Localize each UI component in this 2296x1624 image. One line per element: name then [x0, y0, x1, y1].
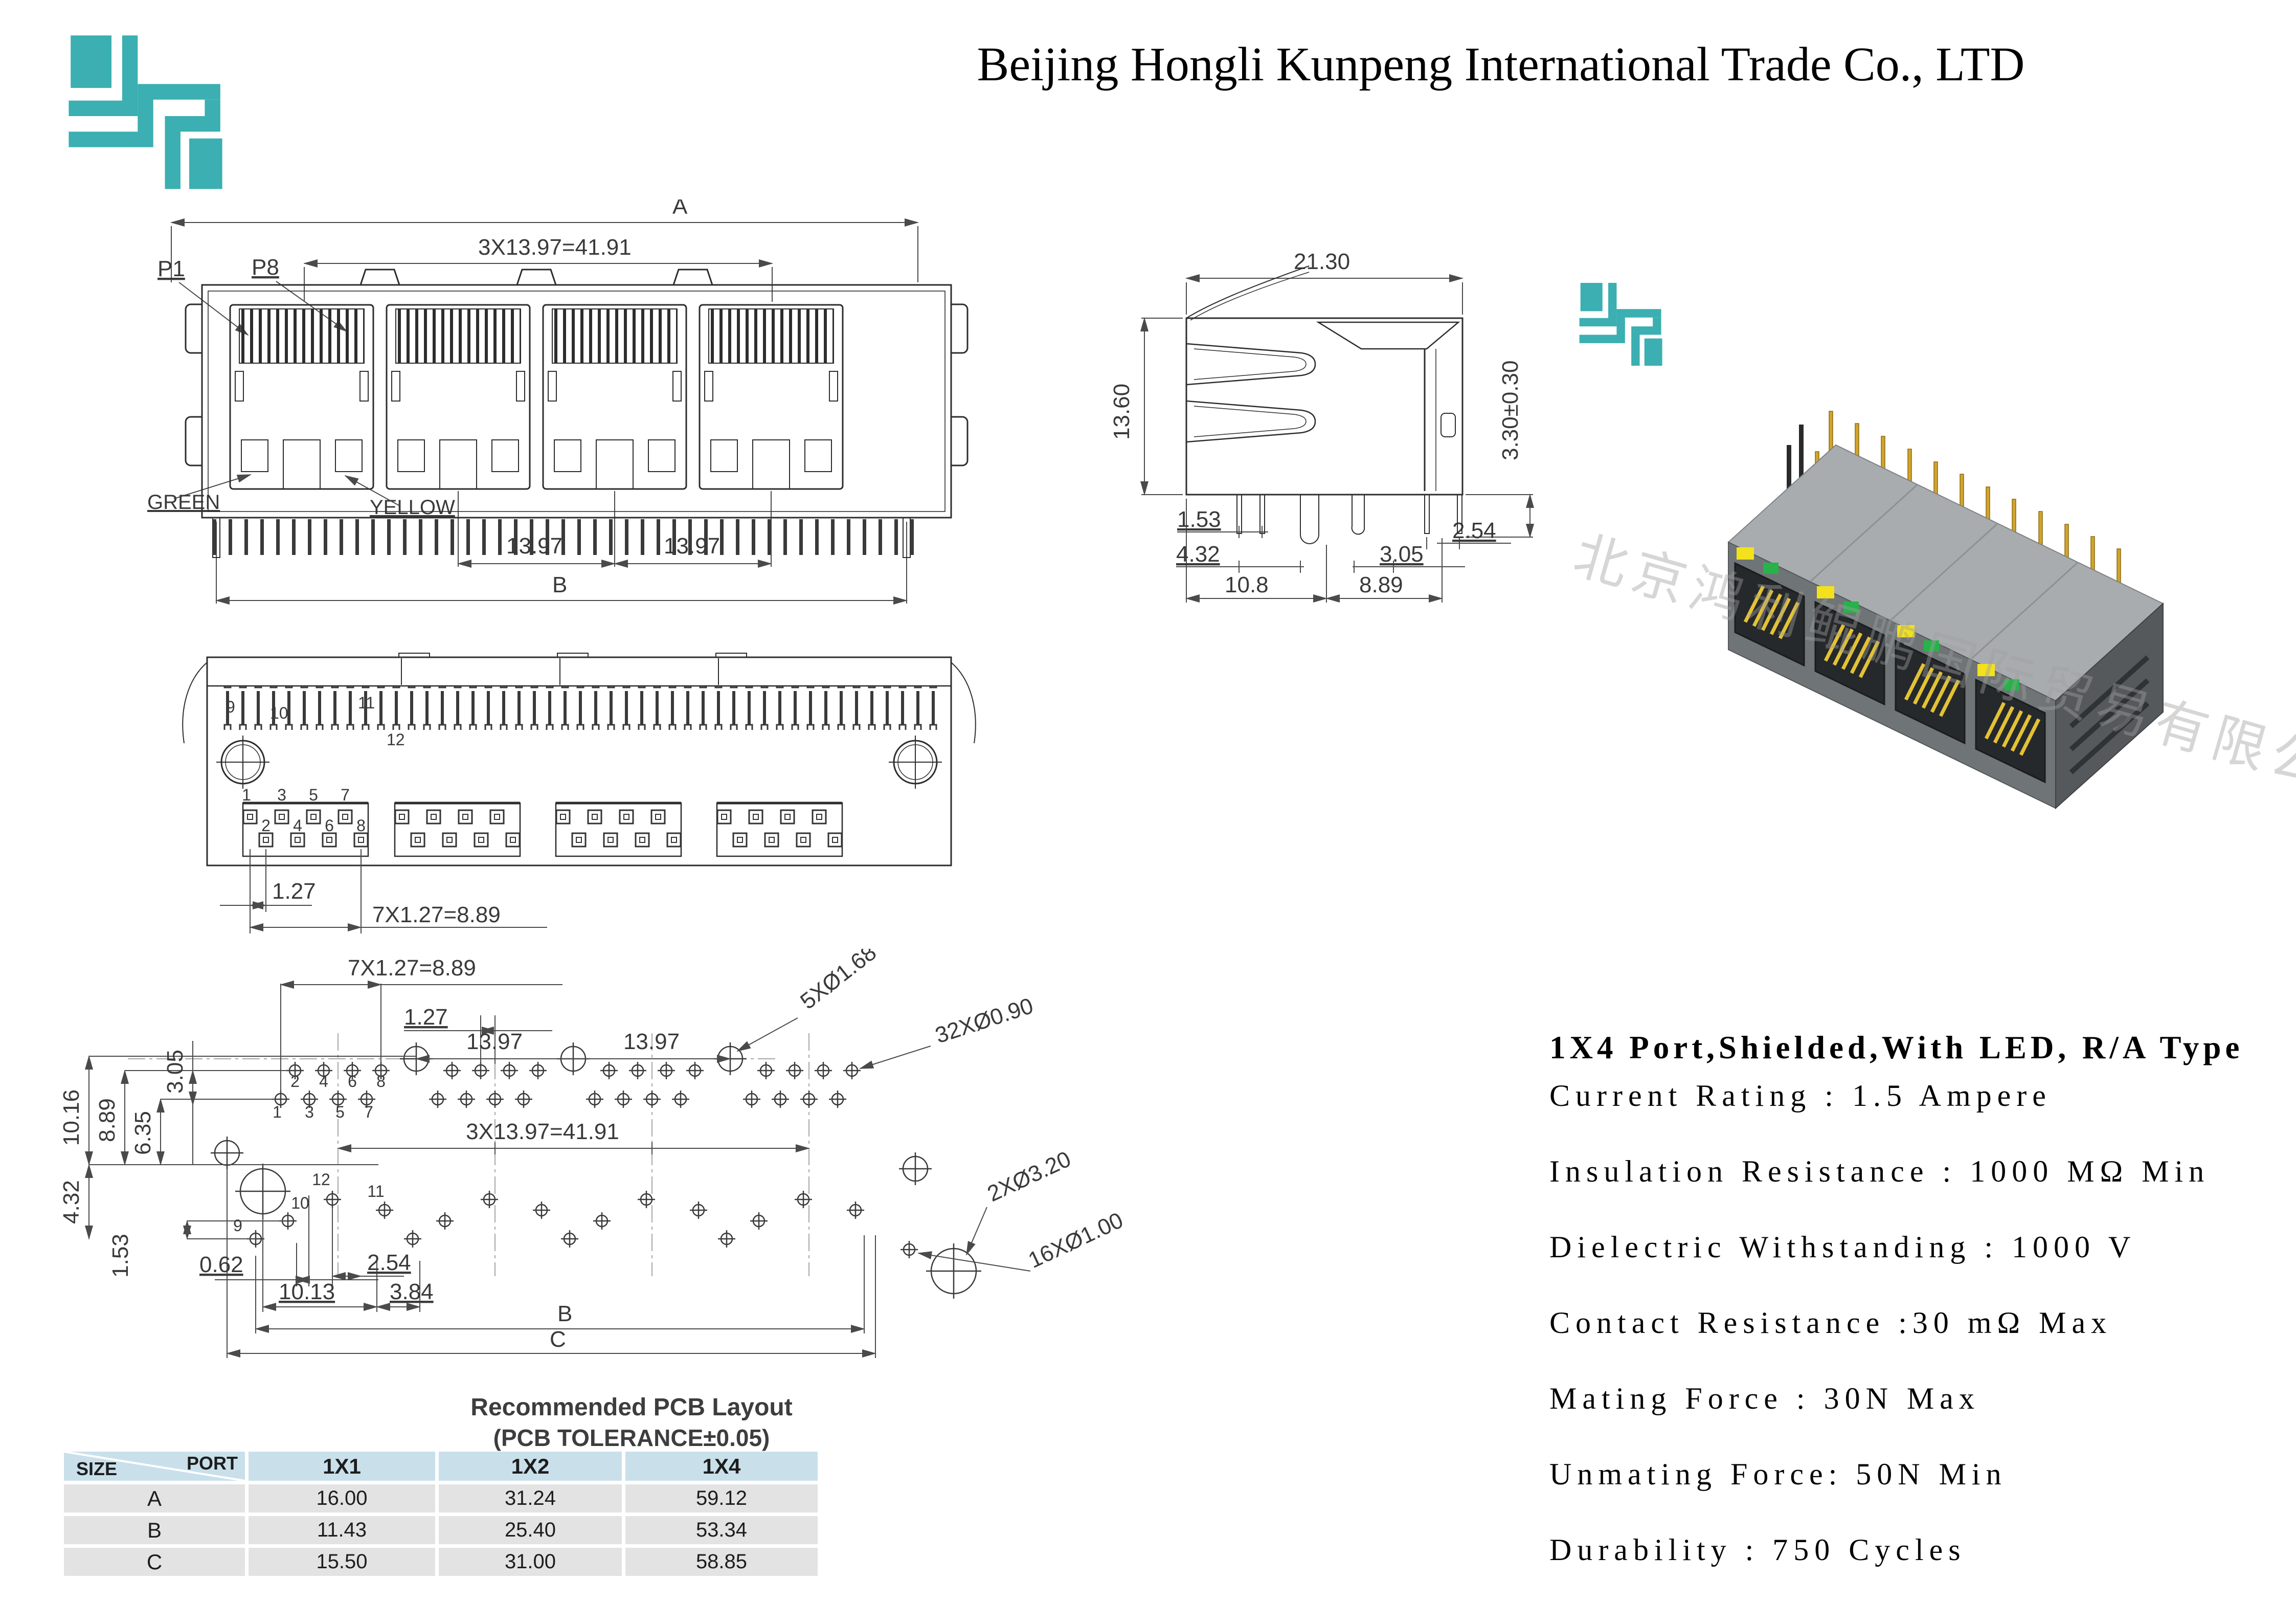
pad4-label: 4: [293, 816, 302, 835]
pcb-dim-labels: 7X1.27=8.89 1.27 13.97 13.97 5XØ1.68 32X…: [59, 949, 1127, 1352]
spec-current-rating: Current Rating : 1.5 Ampere: [1549, 1078, 2052, 1114]
p1-label: P1: [157, 256, 185, 281]
pcb-n8: 8: [376, 1072, 386, 1091]
side-d254: 2.54: [1452, 518, 1496, 543]
pcb-d305: 3.05: [163, 1050, 188, 1094]
pcb-d062: 0.62: [199, 1252, 243, 1277]
company-logo-small: [1566, 270, 1671, 377]
page-title: Beijing Hongli Kunpeng International Tra…: [711, 37, 2291, 92]
col-1x2: 1X2: [439, 1452, 622, 1481]
row-c-1x4: 58.85: [625, 1548, 818, 1576]
side-d153: 1.53: [1177, 507, 1221, 532]
pcb-d432: 4.32: [59, 1180, 84, 1224]
corner-port-label: PORT: [187, 1453, 238, 1474]
pcb-d1013: 10.13: [279, 1279, 335, 1304]
dim-total-label: 3X13.97=41.91: [478, 235, 632, 260]
pcb-caption-2: (PCB TOLERANCE±0.05): [493, 1425, 770, 1451]
pcb-n4: 4: [319, 1072, 328, 1091]
datasheet-page: Beijing Hongli Kunpeng International Tra…: [0, 0, 2296, 1624]
side-d305: 3.05: [1380, 542, 1424, 567]
company-logo: [43, 13, 238, 210]
dim-a-label: A: [672, 199, 688, 219]
pcb-d127: 1.27: [404, 1005, 448, 1030]
spec-list: 1X4 Port,Shielded,With LED, R/A Type Cur…: [1549, 1029, 2296, 1622]
bottom-dtotal: 7X1.27=8.89: [372, 902, 501, 927]
side-d108: 10.8: [1225, 572, 1269, 597]
pcb-d1016: 10.16: [59, 1089, 84, 1146]
pcb-h168: 5XØ1.68: [796, 949, 881, 1014]
pcb-c: C: [550, 1327, 566, 1352]
pcb-h090: 32XØ0.90: [932, 993, 1037, 1049]
row-a-1x2: 31.24: [439, 1484, 622, 1512]
pcb-b: B: [557, 1301, 572, 1326]
col-1x1: 1X1: [249, 1452, 435, 1481]
side-height-label: 13.60: [1109, 384, 1134, 440]
pad8-label: 8: [356, 816, 366, 835]
pad2-label: 2: [261, 816, 271, 835]
pcb-p1397a: 13.97: [466, 1029, 523, 1054]
pcb-n5: 5: [335, 1103, 345, 1121]
spec-insulation-resistance: Insulation Resistance : 1000 MΩ Min: [1549, 1154, 2210, 1189]
side-d432: 4.32: [1176, 542, 1220, 567]
yellow-led-label: YELLOW: [370, 496, 455, 519]
pad1-label: 1: [242, 786, 251, 804]
pcb-n2: 2: [290, 1072, 300, 1091]
row-a-1x4: 59.12: [625, 1484, 818, 1512]
pcb-d153: 1.53: [108, 1234, 133, 1278]
row-b-label: B: [64, 1516, 245, 1544]
row-a-label: A: [64, 1484, 245, 1512]
bottom-d127: 1.27: [272, 879, 316, 904]
size-table-corner: PORT SIZE: [64, 1452, 245, 1481]
pcb-d254: 2.54: [367, 1250, 411, 1275]
front-view-drawing: A 3X13.97=41.91 P1 P8 GREEN YELLOW 13.97…: [143, 199, 1069, 655]
pcb-h100: 16XØ1.00: [1025, 1208, 1127, 1273]
pad3-label: 3: [277, 786, 286, 804]
col-1x4: 1X4: [625, 1452, 818, 1481]
pcb-d635: 6.35: [130, 1111, 155, 1155]
side-dim-labels: 21.30 13.60 3.30±0.30 1.53 2.54 4.32 3.0…: [1109, 249, 1523, 597]
pad6-label: 6: [325, 816, 334, 835]
pcb-n7: 7: [364, 1103, 373, 1121]
spec-dielectric-withstanding: Dielectric Withstanding : 1000 V: [1549, 1230, 2136, 1265]
pcb-n9: 9: [233, 1216, 242, 1235]
pcb-d7x: 7X1.27=8.89: [348, 955, 476, 981]
row-b-1x2: 25.40: [439, 1516, 622, 1544]
pin9-label: 9: [226, 698, 235, 716]
pcb-layout-drawing: 7X1.27=8.89 1.27 13.97 13.97 5XØ1.68 32X…: [46, 949, 1135, 1476]
pcb-n11: 11: [367, 1182, 384, 1200]
spec-contact-resistance: Contact Resistance :30 mΩ Max: [1549, 1305, 2112, 1341]
pcb-n1: 1: [273, 1103, 282, 1121]
pad7-label: 7: [341, 786, 350, 804]
size-table: PORT SIZE 1X1 1X2 1X4 A 16.00 31.24 59.1…: [64, 1452, 818, 1576]
row-c-label: C: [64, 1548, 245, 1576]
pcb-d384: 3.84: [390, 1279, 434, 1304]
pin10-label: 10: [270, 704, 288, 722]
row-b-1x1: 11.43: [249, 1516, 435, 1544]
row-b-1x4: 53.34: [625, 1516, 818, 1544]
side-view-drawing: 21.30 13.60 3.30±0.30 1.53 2.54 4.32 3.0…: [1099, 225, 1585, 624]
green-led-label: GREEN: [147, 491, 220, 514]
spec-mating-force: Mating Force : 30N Max: [1549, 1381, 1980, 1416]
side-connector-body: [1186, 266, 1462, 544]
pcb-d889: 8.89: [95, 1098, 120, 1142]
product-title: 1X4 Port,Shielded,With LED, R/A Type: [1549, 1029, 2243, 1066]
pcb-n10: 10: [291, 1194, 309, 1212]
dim-b-label: B: [552, 572, 567, 597]
pcb-centerlines: [128, 1033, 809, 1276]
side-standoff-label: 3.30±0.30: [1498, 361, 1523, 460]
p8-label: P8: [252, 255, 279, 280]
pcb-n3: 3: [305, 1103, 314, 1121]
pcb-h320: 2XØ3.20: [984, 1146, 1075, 1207]
row-c-1x2: 31.00: [439, 1548, 622, 1576]
corner-size-label: SIZE: [76, 1458, 117, 1480]
pcb-n12: 12: [312, 1170, 330, 1189]
row-c-1x1: 15.50: [249, 1548, 435, 1576]
side-width-label: 21.30: [1294, 249, 1350, 274]
side-d889: 8.89: [1359, 572, 1403, 597]
spec-durability: Durability : 750 Cycles: [1549, 1532, 1966, 1568]
pin11-label: 11: [358, 694, 375, 712]
bottom-view-drawing: 9 10 11 12 1 3 5 7 2 4 6 8 1.27 7X1.27=8…: [143, 647, 1053, 980]
pcb-p1397b: 13.97: [623, 1029, 680, 1054]
row-a-1x1: 16.00: [249, 1484, 435, 1512]
front-bottom-pins: [210, 519, 915, 555]
pcb-caption-1: Recommended PCB Layout: [470, 1394, 792, 1421]
spec-unmating-force: Unmating Force: 50N Min: [1549, 1457, 2007, 1492]
pad5-label: 5: [309, 786, 318, 804]
pin12-label: 12: [387, 730, 405, 749]
pcb-n6: 6: [348, 1072, 357, 1091]
pcb-dtotal: 3X13.97=41.91: [466, 1119, 619, 1144]
